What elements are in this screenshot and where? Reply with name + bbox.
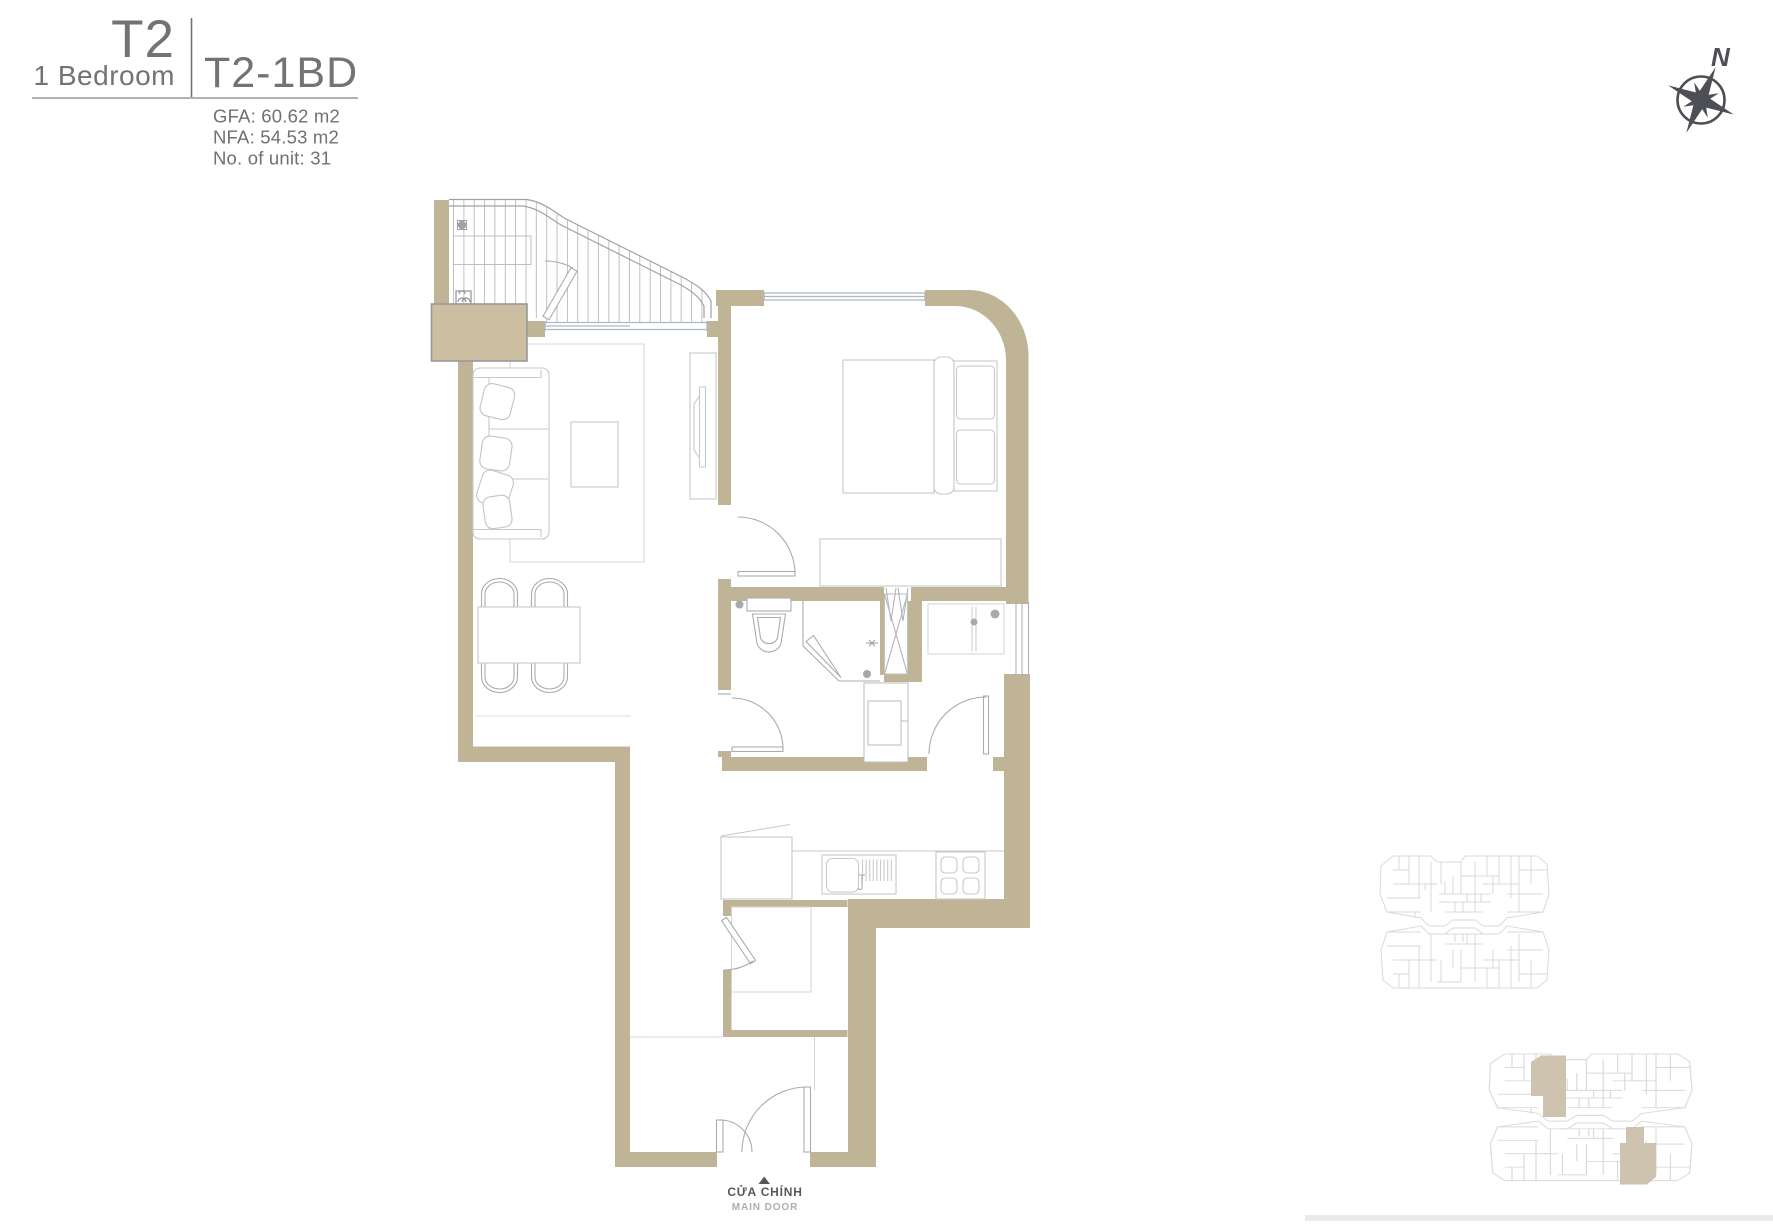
svg-text:N: N (1711, 42, 1731, 72)
svg-text:NFA: 54.53 m2: NFA: 54.53 m2 (213, 127, 339, 148)
svg-text:GFA: 60.62 m2: GFA: 60.62 m2 (213, 106, 340, 127)
svg-text:CỬA CHÍNH: CỬA CHÍNH (727, 1184, 802, 1199)
svg-text:T2-1BD: T2-1BD (204, 49, 358, 97)
svg-text:No. of unit: 31: No. of unit: 31 (213, 148, 331, 169)
svg-text:MAIN DOOR: MAIN DOOR (732, 1202, 798, 1213)
svg-text:1 Bedroom: 1 Bedroom (34, 60, 175, 91)
